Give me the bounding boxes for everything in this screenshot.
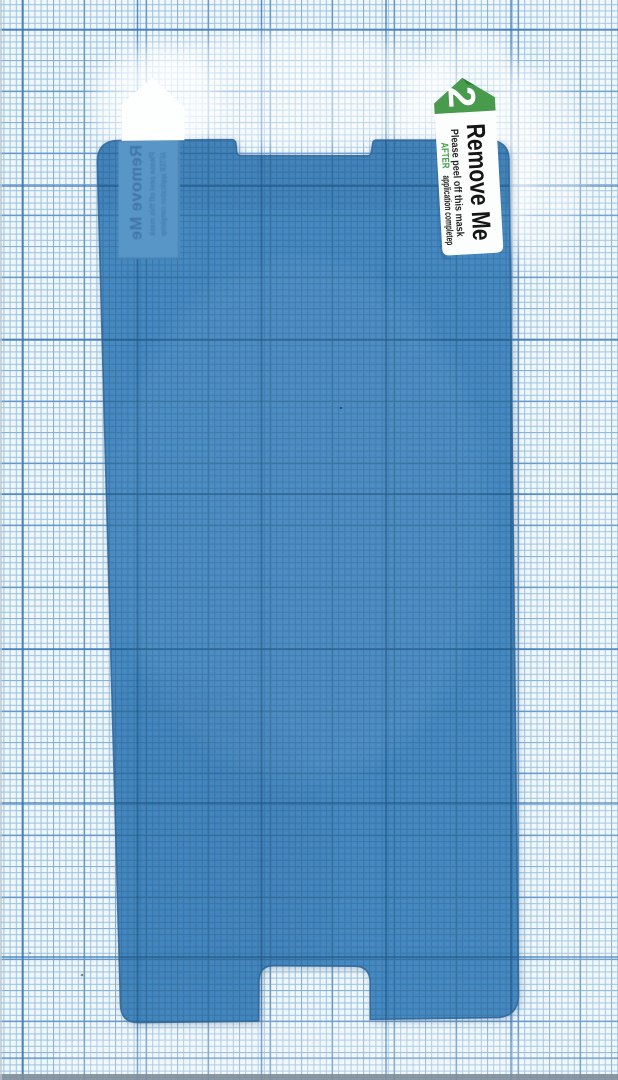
svg-text:Remove Me: Remove Me [128,145,146,240]
svg-text:2: 2 [439,85,482,108]
svg-text:AFTER application completep: AFTER application completep [159,152,168,236]
svg-text:Please peel off this mask: Please peel off this mask [148,152,157,236]
svg-text:AFTER: AFTER [438,142,450,169]
